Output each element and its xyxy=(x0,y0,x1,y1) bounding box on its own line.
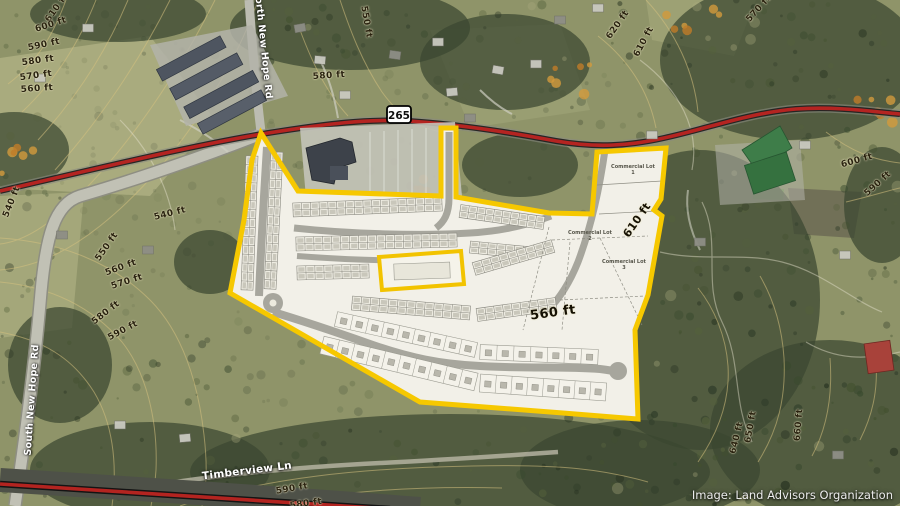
house xyxy=(389,50,401,59)
route-shield-number: 265 xyxy=(388,110,410,122)
house xyxy=(143,246,154,254)
aerial-map: 265 610 ft600 ft590 ft580 ft570 ft560 ft… xyxy=(0,0,900,506)
house xyxy=(555,16,566,24)
route-shield: 265 xyxy=(387,106,411,123)
house xyxy=(492,65,504,75)
house xyxy=(446,88,458,97)
townhome-row xyxy=(297,264,369,280)
house xyxy=(83,24,94,32)
house xyxy=(294,23,306,33)
house xyxy=(57,231,68,239)
house xyxy=(840,251,851,259)
house xyxy=(593,4,604,12)
image-credit: Image: Land Advisors Organization xyxy=(692,488,893,502)
house xyxy=(647,131,658,139)
house xyxy=(800,141,811,149)
house xyxy=(179,434,191,443)
house xyxy=(531,60,542,68)
house xyxy=(465,114,476,122)
house xyxy=(115,421,126,429)
house xyxy=(340,91,351,99)
house xyxy=(833,451,844,459)
house xyxy=(314,56,326,65)
house xyxy=(695,238,706,246)
house xyxy=(433,38,444,46)
aerial-basemap: 265 xyxy=(0,0,900,506)
site-plan xyxy=(230,128,666,419)
house xyxy=(35,74,46,82)
red-roof-building xyxy=(864,340,894,373)
cul-de-sac xyxy=(609,362,627,380)
